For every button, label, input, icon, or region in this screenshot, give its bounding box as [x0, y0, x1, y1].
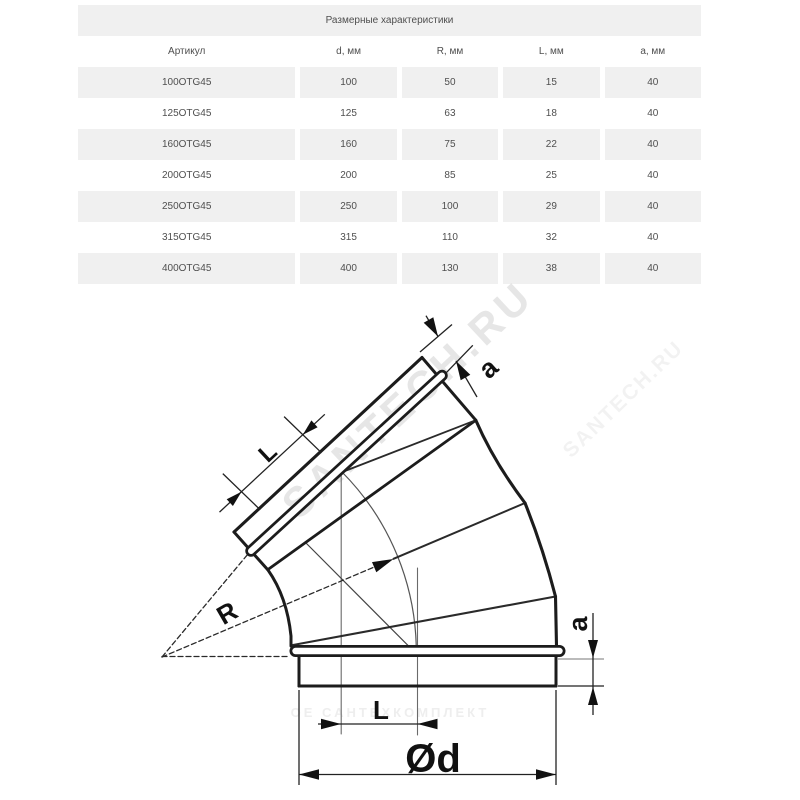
svg-text:a: a	[563, 616, 593, 632]
svg-text:SANTECH.RU: SANTECH.RU	[559, 336, 688, 462]
svg-text:L: L	[253, 438, 282, 468]
svg-text:Ød: Ød	[405, 737, 461, 781]
svg-text:ОЕ САНТЕХКОМПЛЕКТ: ОЕ САНТЕХКОМПЛЕКТ	[291, 705, 490, 720]
svg-text:L: L	[373, 695, 389, 725]
